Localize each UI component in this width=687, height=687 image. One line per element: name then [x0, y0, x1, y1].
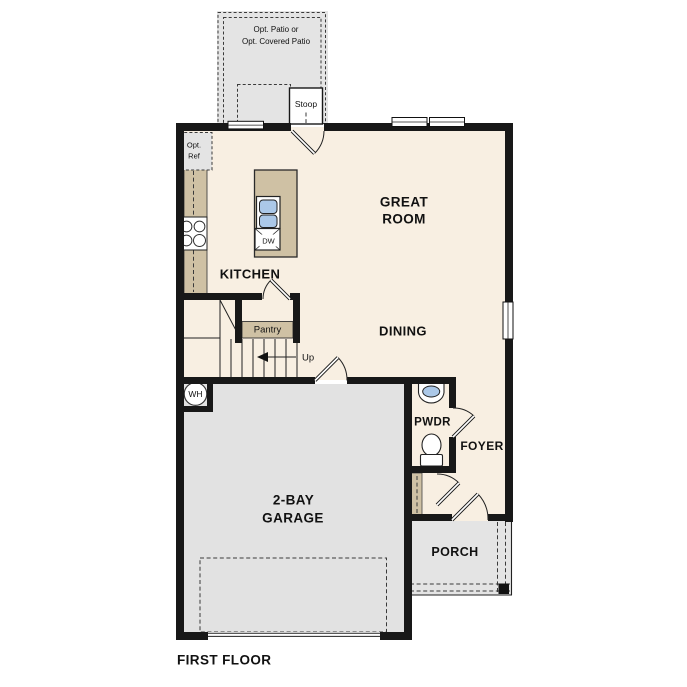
- opt-ref-label-line1: Opt.: [187, 141, 201, 149]
- island-sink: [257, 197, 281, 229]
- wall-front-b: [488, 514, 513, 521]
- wall-wh-bottom: [176, 406, 213, 412]
- dishwasher-label: DW: [261, 237, 276, 245]
- pantry-label: Pantry: [254, 325, 281, 335]
- first-floor-label: FIRST FLOOR: [177, 653, 271, 667]
- wall-pwdr-bottom: [404, 466, 456, 473]
- porch-label: PORCH: [431, 546, 478, 559]
- stoop-label: Stoop: [295, 100, 317, 109]
- wall-pantry-left: [235, 293, 242, 343]
- great-room-window-1: [392, 118, 427, 127]
- water-heater-label: WH: [188, 390, 202, 399]
- patio-label-line2: Opt. Covered Patio: [242, 38, 310, 46]
- dining-window: [503, 302, 513, 339]
- porch-post: [499, 584, 510, 595]
- wall-garage-right: [404, 377, 412, 640]
- floor-plan-svg: [0, 0, 687, 687]
- powder-sink: [419, 382, 445, 403]
- up-label: Up: [302, 353, 314, 363]
- wall-kitchen-south-a: [184, 293, 262, 300]
- great-room-label-line2: ROOM: [382, 212, 426, 226]
- floor-fills: [180, 11, 512, 632]
- patio-label-line1: Opt. Patio or: [254, 26, 299, 34]
- coat-closet-shelf: [412, 473, 423, 517]
- toilet: [421, 434, 443, 466]
- wall-garage-top-a: [184, 377, 315, 384]
- wall-garage-bottom-b: [380, 632, 412, 640]
- garage-floor: [184, 384, 404, 632]
- wall-front-a: [404, 514, 452, 521]
- dining-label: DINING: [379, 325, 427, 338]
- wall-garage-bottom-a: [176, 632, 208, 640]
- floor-plan: Opt. Patio or Opt. Covered Patio Stoop O…: [0, 0, 687, 687]
- foyer-label: FOYER: [460, 440, 503, 452]
- great-room-label-line1: GREAT: [380, 195, 428, 209]
- wall-garage-top-b: [347, 377, 456, 384]
- wall-left: [176, 123, 184, 640]
- kitchen-label: KITCHEN: [220, 267, 281, 280]
- garage-label-line1: 2-BAY: [273, 493, 314, 507]
- main-floor: [180, 127, 509, 380]
- garage-door: [208, 632, 380, 640]
- wall-pwdr-right-a: [449, 377, 456, 408]
- great-room-window-2: [430, 118, 465, 127]
- kitchen-window: [228, 121, 264, 129]
- wall-pantry-right: [293, 293, 300, 343]
- powder-label: PWDR: [414, 417, 451, 429]
- opt-ref-label-line2: Ref: [188, 152, 200, 160]
- garage-label-line2: GARAGE: [262, 511, 324, 525]
